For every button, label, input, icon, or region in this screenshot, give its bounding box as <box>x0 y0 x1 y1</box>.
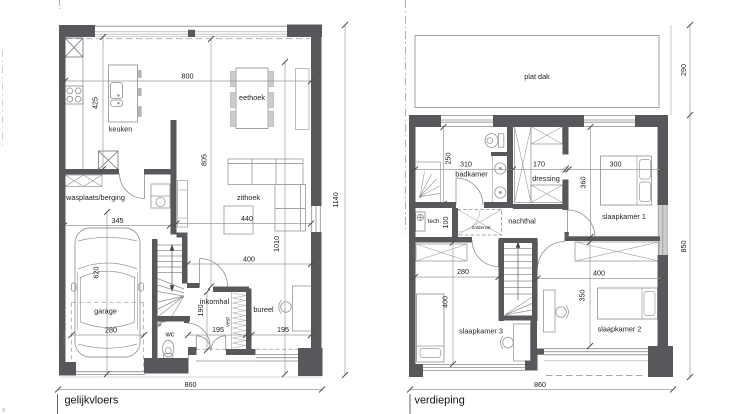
svg-text:badkamer: badkamer <box>455 170 488 179</box>
svg-text:620: 620 <box>92 267 101 279</box>
svg-text:vest: vest <box>226 317 232 327</box>
svg-text:300: 300 <box>610 160 622 169</box>
svg-text:800: 800 <box>182 72 194 81</box>
svg-text:slaapkamer 1: slaapkamer 1 <box>602 212 646 221</box>
svg-text:garage: garage <box>94 307 117 316</box>
svg-text:100: 100 <box>441 217 450 229</box>
svg-text:290: 290 <box>679 64 688 76</box>
svg-text:195: 195 <box>277 325 289 334</box>
svg-text:425: 425 <box>91 97 100 109</box>
svg-text:195: 195 <box>212 325 224 334</box>
svg-text:inkomhal: inkomhal <box>200 297 230 306</box>
svg-text:wc: wc <box>165 330 175 339</box>
svg-text:eethoek: eethoek <box>239 93 265 102</box>
svg-text:860: 860 <box>534 380 546 389</box>
svg-text:350: 350 <box>578 290 587 302</box>
svg-text:plat dak: plat dak <box>524 72 550 81</box>
svg-text:250: 250 <box>444 153 453 165</box>
svg-text:310: 310 <box>460 160 472 169</box>
svg-text:zithoek: zithoek <box>237 193 260 202</box>
svg-text:400: 400 <box>243 255 255 264</box>
svg-text:bureel: bureel <box>253 305 274 314</box>
svg-text:tech.: tech. <box>428 218 442 225</box>
svg-text:190: 190 <box>196 305 205 317</box>
svg-text:1140: 1140 <box>331 192 340 207</box>
svg-text:verdieping: verdieping <box>415 395 465 407</box>
svg-text:slaapkamer 2: slaapkamer 2 <box>598 324 642 333</box>
svg-text:400: 400 <box>593 269 605 278</box>
svg-text:dressing: dressing <box>532 174 560 183</box>
svg-text:440: 440 <box>241 214 253 223</box>
svg-text:360: 360 <box>579 177 588 189</box>
svg-text:850: 850 <box>679 241 688 253</box>
svg-text:gelijkvloers: gelijkvloers <box>65 395 119 407</box>
svg-text:36: 36 <box>2 408 6 412</box>
svg-text:860: 860 <box>185 380 197 389</box>
svg-text:805: 805 <box>200 154 209 166</box>
svg-text:280: 280 <box>457 267 469 276</box>
svg-text:wasplaats/berging: wasplaats/berging <box>65 193 125 202</box>
svg-text:400: 400 <box>441 296 450 308</box>
svg-text:Zolderval: Zolderval <box>472 225 491 230</box>
svg-text:345: 345 <box>112 216 124 225</box>
svg-text:keuken: keuken <box>109 125 133 134</box>
svg-text:280: 280 <box>105 326 117 335</box>
svg-text:sectionaal: sectionaal <box>63 330 67 346</box>
svg-text:1010: 1010 <box>272 236 281 252</box>
svg-text:nachthal: nachthal <box>508 217 536 226</box>
svg-text:slaapkamer 3: slaapkamer 3 <box>459 326 503 335</box>
svg-text:170: 170 <box>533 160 545 169</box>
